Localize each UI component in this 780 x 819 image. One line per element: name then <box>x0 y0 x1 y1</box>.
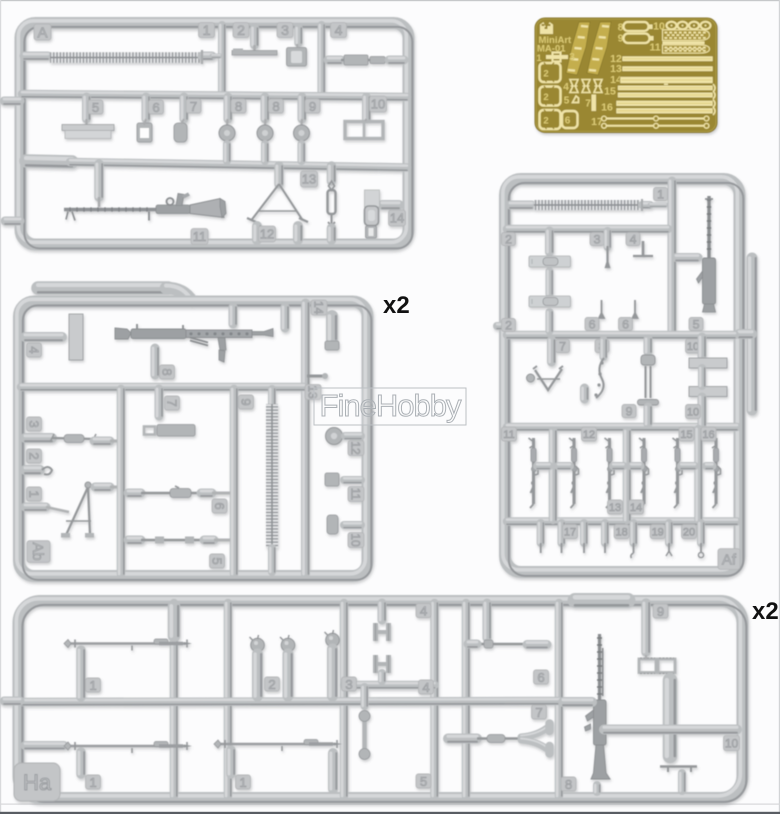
svg-text:1: 1 <box>89 775 96 790</box>
svg-text:Af: Af <box>722 551 737 568</box>
svg-text:3: 3 <box>281 22 289 38</box>
svg-text:2: 2 <box>505 318 512 332</box>
svg-text:14: 14 <box>390 211 404 226</box>
svg-text:4: 4 <box>335 22 343 38</box>
svg-text:11: 11 <box>349 488 363 501</box>
svg-text:11: 11 <box>503 429 514 441</box>
svg-text:5: 5 <box>209 557 224 564</box>
svg-text:10: 10 <box>371 97 385 112</box>
svg-text:2: 2 <box>543 92 548 103</box>
svg-text:11: 11 <box>649 42 660 54</box>
svg-text:3: 3 <box>594 232 601 246</box>
svg-text:12: 12 <box>260 227 274 242</box>
svg-text:13: 13 <box>609 502 621 514</box>
svg-text:10: 10 <box>725 736 739 750</box>
svg-text:2: 2 <box>543 116 548 127</box>
svg-text:5: 5 <box>564 96 570 107</box>
svg-text:4: 4 <box>563 82 569 93</box>
svg-text:3: 3 <box>26 420 41 427</box>
svg-text:7: 7 <box>535 705 542 720</box>
svg-text:1: 1 <box>537 53 542 63</box>
svg-text:2: 2 <box>505 232 512 246</box>
svg-text:Ha: Ha <box>23 770 52 795</box>
svg-text:7: 7 <box>164 399 179 406</box>
svg-text:20: 20 <box>683 526 695 538</box>
svg-text:8: 8 <box>235 99 242 114</box>
svg-text:6: 6 <box>152 100 159 115</box>
svg-text:9: 9 <box>657 604 664 619</box>
svg-text:4: 4 <box>630 232 637 246</box>
svg-text:2: 2 <box>543 69 548 80</box>
svg-text:11: 11 <box>193 229 207 244</box>
svg-text:Ab: Ab <box>29 542 46 560</box>
svg-text:1: 1 <box>89 678 96 693</box>
svg-text:15: 15 <box>680 429 692 441</box>
svg-text:19: 19 <box>652 526 664 538</box>
svg-text:3: 3 <box>345 677 352 692</box>
svg-text:14: 14 <box>630 502 642 514</box>
svg-text:7: 7 <box>559 339 566 353</box>
svg-text:6: 6 <box>565 116 571 127</box>
svg-text:6: 6 <box>212 502 227 509</box>
svg-text:1: 1 <box>203 22 211 38</box>
svg-text:5: 5 <box>92 100 99 115</box>
svg-text:x2: x2 <box>752 598 779 625</box>
svg-text:13: 13 <box>302 172 316 187</box>
svg-text:16: 16 <box>702 429 714 441</box>
svg-text:5: 5 <box>693 317 700 331</box>
svg-text:8: 8 <box>272 99 279 114</box>
svg-text:2: 2 <box>268 677 275 692</box>
svg-text:1: 1 <box>239 775 246 790</box>
svg-text:15: 15 <box>604 86 616 98</box>
svg-text:17: 17 <box>564 526 576 538</box>
svg-text:7: 7 <box>585 99 591 110</box>
svg-text:2: 2 <box>26 452 41 459</box>
svg-text:10: 10 <box>349 533 363 547</box>
svg-text:12: 12 <box>349 441 363 455</box>
svg-text:9: 9 <box>238 398 253 405</box>
svg-text:4: 4 <box>422 680 429 695</box>
svg-text:18: 18 <box>615 526 627 538</box>
svg-text:14: 14 <box>312 301 326 315</box>
svg-text:16: 16 <box>601 102 613 114</box>
svg-text:FineHobby: FineHobby <box>320 388 462 423</box>
svg-text:8: 8 <box>565 777 572 792</box>
svg-text:7: 7 <box>190 99 197 114</box>
svg-text:2: 2 <box>237 22 245 38</box>
svg-text:4: 4 <box>420 603 427 618</box>
svg-text:6: 6 <box>622 317 629 331</box>
svg-text:10: 10 <box>687 341 699 353</box>
svg-text:3: 3 <box>569 52 575 63</box>
svg-text:1: 1 <box>26 490 41 497</box>
svg-text:x2: x2 <box>383 292 410 319</box>
svg-text:5: 5 <box>420 774 427 789</box>
svg-text:9: 9 <box>626 404 633 418</box>
svg-text:8: 8 <box>159 368 174 375</box>
svg-text:6: 6 <box>589 317 596 331</box>
svg-text:1: 1 <box>657 187 664 201</box>
svg-text:6: 6 <box>537 670 544 685</box>
svg-text:4: 4 <box>26 346 41 353</box>
svg-text:9: 9 <box>309 99 316 114</box>
svg-text:10: 10 <box>687 406 699 418</box>
svg-text:12: 12 <box>583 429 595 441</box>
svg-text:A: A <box>37 24 47 41</box>
